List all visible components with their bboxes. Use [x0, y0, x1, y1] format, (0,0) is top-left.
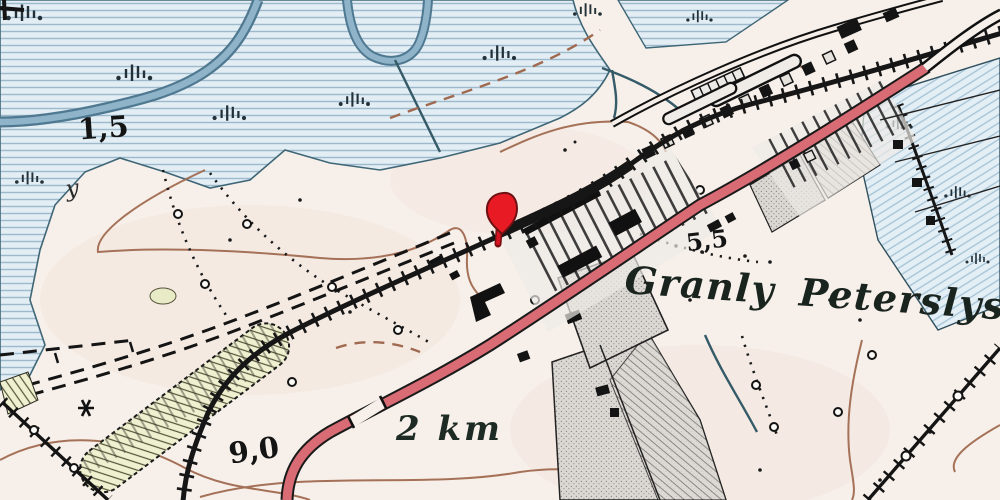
distance-label: 2 km: [395, 409, 503, 449]
spot-height-label: 9,0: [226, 430, 281, 471]
spot-height-label: 5,5: [684, 223, 729, 257]
spot-height-label: 1,5: [77, 109, 130, 146]
historical-topo-map[interactable]: 1,5 5,5 9,0 2 km y Granly Peterslyst: [0, 0, 1000, 500]
map-canvas[interactable]: 1,5 5,5 9,0 2 km y Granly Peterslyst: [0, 0, 1000, 500]
